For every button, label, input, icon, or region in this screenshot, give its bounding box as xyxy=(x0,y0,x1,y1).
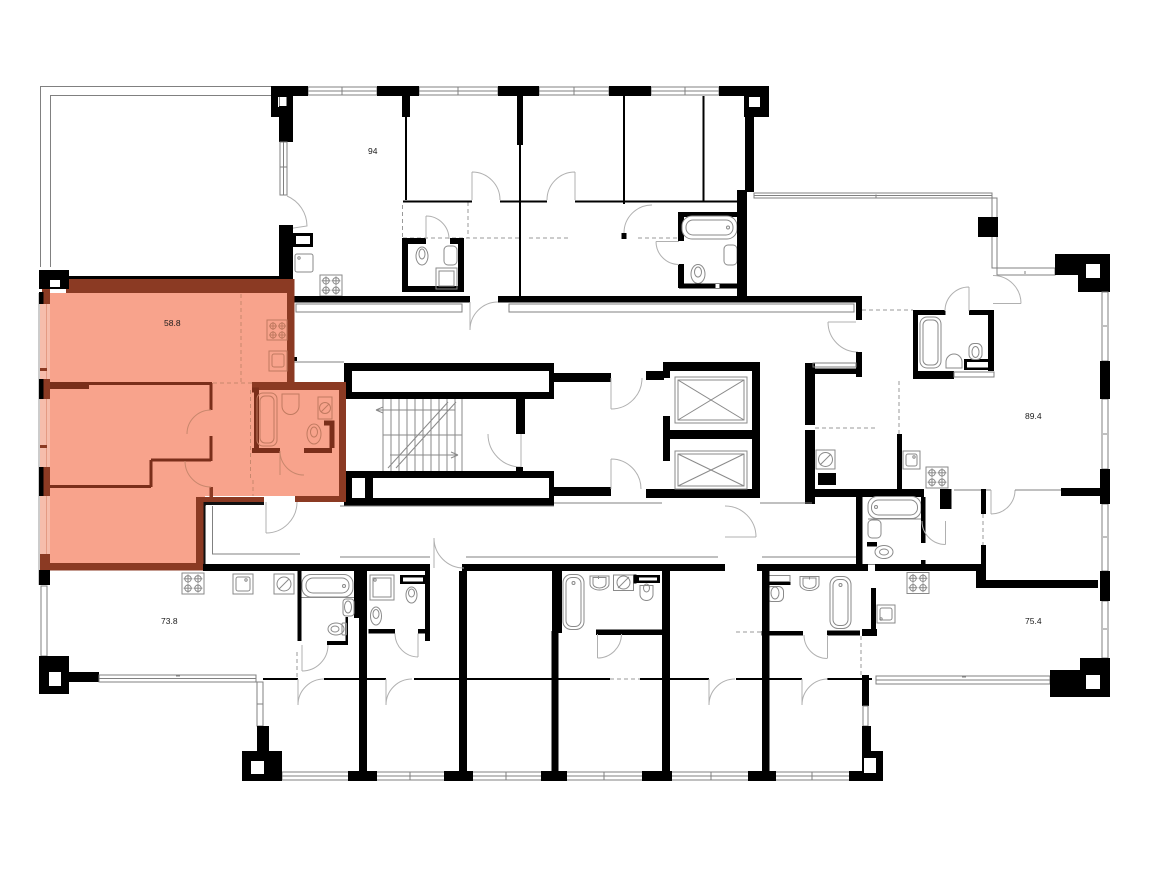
svg-text:94: 94 xyxy=(368,146,378,156)
svg-text:75.4: 75.4 xyxy=(1025,616,1042,626)
svg-text:73.8: 73.8 xyxy=(161,616,178,626)
svg-text:89.4: 89.4 xyxy=(1025,411,1042,421)
svg-text:58.8: 58.8 xyxy=(164,318,181,328)
